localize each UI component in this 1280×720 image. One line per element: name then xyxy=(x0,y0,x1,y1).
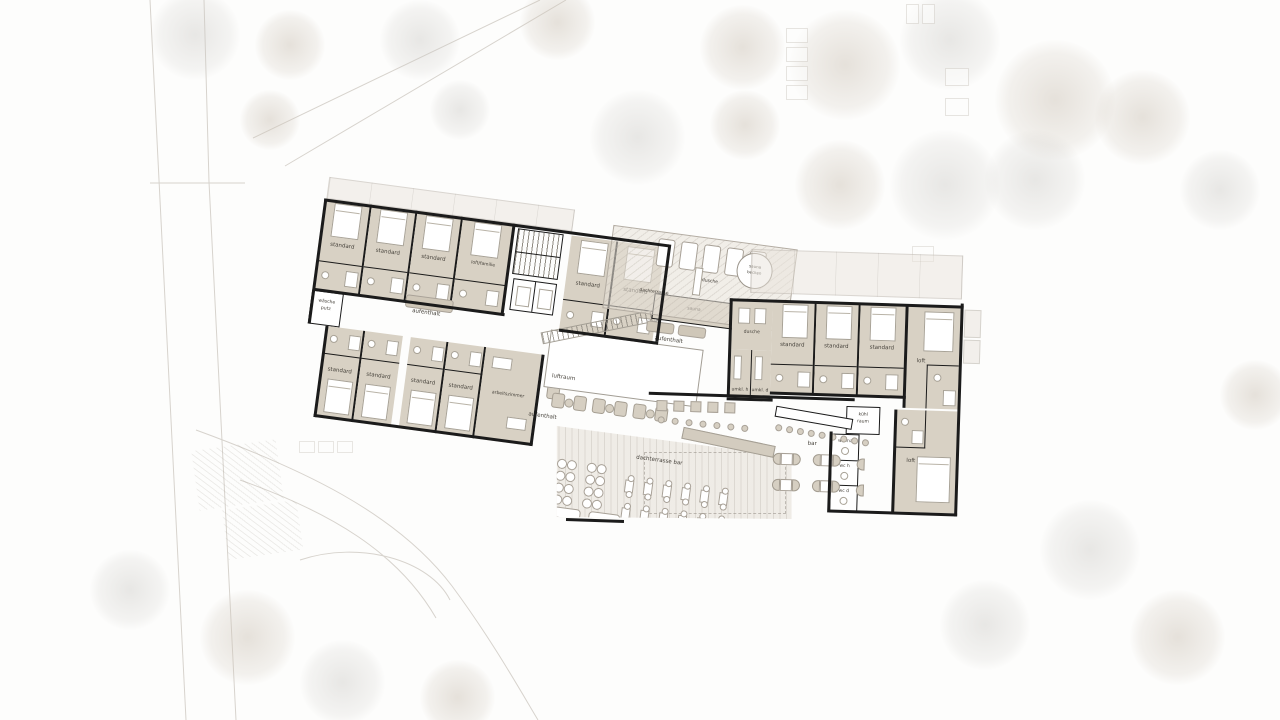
parking-spot xyxy=(786,66,808,81)
bar-seat-cluster xyxy=(812,479,838,492)
parking-row xyxy=(786,28,808,100)
bed xyxy=(870,307,897,342)
bar-stool xyxy=(657,416,665,424)
room-label: loft/familie xyxy=(457,259,509,271)
bar-stool xyxy=(699,420,707,428)
bed xyxy=(323,378,353,415)
bed xyxy=(915,456,950,503)
bathroom xyxy=(445,342,484,375)
bathroom xyxy=(770,364,813,395)
bar-label: bar xyxy=(797,440,827,448)
shower-fixture xyxy=(797,371,810,387)
bar-stool xyxy=(851,437,859,445)
room-label: standard xyxy=(405,377,442,388)
parking-spot xyxy=(786,28,808,43)
room-label: standard xyxy=(771,342,813,350)
room-loft: loft xyxy=(905,306,960,410)
room-standard: standard xyxy=(858,304,906,397)
room-label: arbeitszimmer xyxy=(480,389,536,402)
wc-fixture xyxy=(840,472,848,480)
bar-chair xyxy=(856,458,864,470)
parking-row xyxy=(906,4,935,24)
bar-terrace-chair xyxy=(673,401,684,412)
bar-stool xyxy=(818,431,826,439)
room-label: standard xyxy=(359,371,398,383)
bathroom xyxy=(814,365,857,396)
bar-seat-cluster xyxy=(773,452,799,465)
shower-fixture xyxy=(348,335,362,351)
balcony-ghost xyxy=(964,310,982,339)
wc-stack: wc ma wc h wc d xyxy=(829,434,859,513)
bar-stool xyxy=(840,435,848,443)
shower-fixture xyxy=(841,373,854,389)
elevator-car xyxy=(515,286,532,308)
shower-fixture xyxy=(911,430,923,444)
shower-fixture xyxy=(738,308,750,324)
elevator xyxy=(509,278,557,316)
room-label: standard xyxy=(366,246,410,258)
stairwell xyxy=(512,228,564,280)
room-label: standard xyxy=(411,252,455,264)
bar-seat-cluster xyxy=(813,453,839,466)
bar-seat-cluster xyxy=(772,478,798,491)
bathroom xyxy=(362,331,403,364)
shower-fixture xyxy=(389,277,404,295)
shower-fixture xyxy=(485,290,500,308)
shower-fixture xyxy=(431,346,445,362)
bar-stool xyxy=(741,425,749,433)
wc-fixture xyxy=(863,376,871,384)
changing-rooms: umkl. h umkl. d xyxy=(730,349,772,400)
bed xyxy=(923,311,954,352)
room-loft: loft xyxy=(893,410,957,514)
room-label: standard xyxy=(815,343,857,351)
changing-f-label: umkl. d xyxy=(750,388,770,394)
wc-fixture xyxy=(566,310,575,319)
shower-fixture xyxy=(385,340,399,356)
wc-fixture xyxy=(819,375,827,383)
wc-fixture xyxy=(329,334,338,343)
elevator-car xyxy=(537,289,554,311)
bottom-room-row: standard standard standard xyxy=(315,326,541,446)
parking-row xyxy=(945,68,969,116)
bar-stool xyxy=(775,424,783,432)
parking-spot xyxy=(786,85,808,100)
bar-stool xyxy=(685,419,693,427)
roof-terrace-label: dachterrasse xyxy=(624,286,684,299)
shower-fixture xyxy=(754,308,766,324)
bed xyxy=(361,383,391,420)
wc-fixture xyxy=(775,374,783,382)
vegetation-patch xyxy=(222,500,303,560)
room-label: standard xyxy=(565,279,610,291)
shower-fixture xyxy=(943,390,956,406)
wc-fixture xyxy=(901,418,909,426)
bed xyxy=(376,209,408,246)
bar-stool xyxy=(807,429,815,437)
parking-spot xyxy=(906,4,919,24)
wc-fixture xyxy=(412,283,421,292)
right-wing: dusche umkl. h umkl. d standard standard xyxy=(715,292,982,530)
wc-fixture xyxy=(321,271,330,280)
bed xyxy=(782,304,809,339)
bar-stool xyxy=(786,426,794,434)
wc-fixture xyxy=(366,277,375,286)
bar-terrace-chair xyxy=(656,400,667,411)
site-plan-canvas: dachterrasse bar xyxy=(0,0,1280,720)
bar-stool xyxy=(796,428,804,436)
wc-fixture xyxy=(933,374,941,382)
bed xyxy=(422,215,454,252)
room-label: standard xyxy=(859,344,904,352)
bar-stool xyxy=(861,439,869,447)
lower-floor-ghost xyxy=(750,249,963,300)
locker xyxy=(754,356,763,380)
bed xyxy=(577,240,609,277)
bed xyxy=(406,390,436,427)
room-standard: standard xyxy=(814,303,861,396)
bed xyxy=(330,203,362,240)
bar-chair xyxy=(856,484,864,496)
wc-fixture xyxy=(841,447,849,455)
changing-m-label: umkl. h xyxy=(730,387,750,393)
bathroom xyxy=(895,410,926,449)
terrace-shower-label: dusche xyxy=(701,278,731,287)
balcony-ghost xyxy=(963,340,981,365)
bathroom xyxy=(407,337,446,370)
shower-room-label: dusche xyxy=(732,329,772,336)
parking-spot xyxy=(945,68,969,86)
void-label: luftraum xyxy=(551,373,611,387)
bar-terrace-chair xyxy=(690,401,701,412)
bed xyxy=(826,305,853,340)
wc-fixture xyxy=(413,346,422,355)
desk xyxy=(506,417,527,432)
bathroom xyxy=(858,366,904,397)
bed xyxy=(444,395,474,432)
room-label: standard xyxy=(320,240,364,252)
vegetation-patch xyxy=(191,439,284,510)
parking-spot xyxy=(786,47,808,62)
room-label: standard xyxy=(321,366,358,377)
bed xyxy=(470,222,502,259)
wc-fixture xyxy=(367,339,376,348)
parking-spot xyxy=(945,98,969,116)
wc-fixture xyxy=(459,289,468,298)
shower-fixture xyxy=(885,374,898,390)
bar-terrace-chair xyxy=(707,402,718,413)
room-label: standard xyxy=(442,382,479,393)
shower-room: dusche xyxy=(731,301,772,350)
room-standard: standard xyxy=(770,302,817,395)
bar-terrace-chair xyxy=(724,402,735,413)
lounge-pair xyxy=(551,392,585,410)
desk xyxy=(491,356,512,371)
lounge-bench xyxy=(677,324,706,339)
sun-lounger xyxy=(701,244,722,274)
cold-room-label-1: kühl xyxy=(847,412,879,418)
lounge-pair xyxy=(592,398,626,416)
wc-fixture xyxy=(450,351,459,360)
locker xyxy=(733,355,742,379)
bathroom xyxy=(925,364,958,409)
bar-stool xyxy=(671,417,679,425)
bar-stool xyxy=(727,423,735,431)
shower-fixture xyxy=(344,271,359,289)
shower-fixture xyxy=(468,351,482,367)
wc-fixture xyxy=(839,497,847,505)
bar-stool xyxy=(713,422,721,430)
bathroom xyxy=(324,326,363,359)
parking-spot xyxy=(922,4,935,24)
